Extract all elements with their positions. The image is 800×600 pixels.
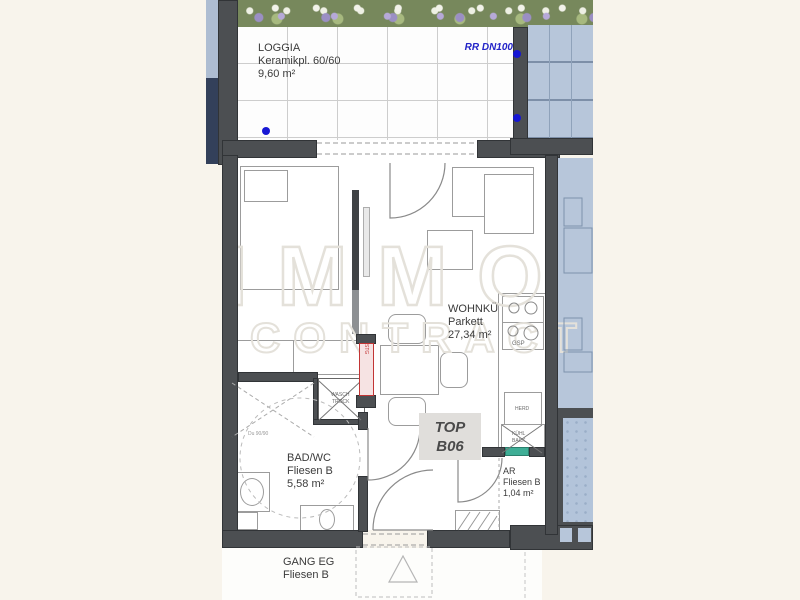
wall-bottom-right: [427, 530, 510, 548]
wall-closet-bottom: [313, 419, 363, 425]
ar-finish: Fliesen B: [503, 477, 541, 488]
neighbor-room-bottom: [563, 418, 593, 522]
neighbor-loggia-floor: [528, 25, 593, 138]
gang-floor: [222, 548, 542, 600]
plumbing-dot-pillar-top: [513, 50, 521, 58]
wohnkueche-label: WOHNKÜ Parkett 27,34 m²: [448, 303, 498, 342]
stove-label: HERD: [515, 406, 529, 412]
neighbor-tile-a: [560, 528, 572, 542]
loggia-finish: Keramikpl. 60/60: [258, 55, 341, 68]
unit-number: B06: [419, 437, 481, 456]
riser-shaft-label: STG: [363, 344, 369, 354]
bad-name: BAD/WC: [287, 452, 333, 465]
washer-label: WASCH: [331, 392, 349, 398]
fridge-label-top: KÜHL: [512, 431, 525, 437]
washbasin: [234, 472, 270, 512]
floorplan-canvas: GSP HERD KÜHL BACK WASCH TROCK IMMO CONT…: [0, 0, 800, 600]
ar-label: AR Fliesen B 1,04 m²: [503, 466, 541, 499]
loggia-label: LOGGIA Keramikpl. 60/60 9,60 m²: [258, 42, 341, 81]
unit-number-box: TOP B06: [419, 413, 481, 460]
wohnkueche-area: 27,34 m²: [448, 329, 498, 342]
balcony-door-opening: [317, 140, 477, 158]
sliding-door-panel: [363, 207, 370, 277]
fridge-label-bottom: BACK: [512, 438, 526, 444]
left-edge-strip-dark: [206, 78, 218, 164]
wall-right: [545, 155, 558, 535]
wall-ar-top-left: [482, 447, 505, 457]
shower-label: Du 90/90: [248, 431, 268, 437]
wall-bath-right-upper: [358, 412, 368, 430]
partition-dark: [352, 190, 359, 290]
neighbor-tile-b: [578, 528, 591, 542]
bad-finish: Fliesen B: [287, 465, 333, 478]
wall-bottom-left: [222, 530, 363, 548]
wohnkueche-finish: Parkett: [448, 316, 498, 329]
wall-loggia-right-pillar: [513, 27, 528, 140]
ar-area: 1,04 m²: [503, 488, 541, 499]
neighbor-room-strip: [558, 158, 593, 408]
dishwasher-label: GSP: [512, 341, 525, 348]
gang-name: GANG EG: [283, 556, 334, 569]
loggia-name: LOGGIA: [258, 42, 341, 55]
chair-top: [388, 314, 426, 344]
wc: [300, 505, 354, 533]
planting-strip-photo: [222, 0, 593, 27]
washbasin-bowl: [240, 478, 264, 506]
sideboard-divider: [293, 341, 294, 374]
wall-shaft-cap-bottom: [356, 395, 376, 408]
dryer-label: TROCK: [332, 399, 350, 405]
wall-bath-top: [238, 372, 318, 382]
drainpipe-label: RR DN100: [458, 42, 513, 53]
loggia-area: 9,60 m²: [258, 68, 341, 81]
bad-area: 5,58 m²: [287, 478, 333, 491]
wall-left: [222, 155, 238, 548]
ar-name: AR: [503, 466, 541, 477]
side-table: [427, 230, 473, 270]
oven-unit: HERD: [504, 392, 542, 426]
bad-label: BAD/WC Fliesen B 5,58 m²: [287, 452, 333, 491]
gang-finish: Fliesen B: [283, 569, 334, 582]
wall-bath-right-lower: [358, 476, 368, 532]
riser-shaft: STG: [359, 343, 374, 396]
wall-neighbor-loggia-bottom: [510, 138, 593, 155]
sideboard: [234, 340, 362, 375]
wall-ar-top-right: [529, 447, 545, 457]
sink-divider: [503, 322, 543, 323]
unit-prefix: TOP: [419, 418, 481, 437]
partition-gray: [352, 290, 359, 334]
wardrobe-side: [484, 174, 534, 234]
left-edge-strip-light: [206, 0, 218, 78]
plumbing-dot-loggia: [262, 127, 270, 135]
wohnkueche-name: WOHNKÜ: [448, 303, 498, 316]
bed-pillow: [244, 170, 288, 202]
entry-opening-dashes: [363, 534, 427, 545]
dining-table: [380, 345, 439, 395]
chair-right: [440, 352, 468, 388]
ar-door-threshold: [505, 447, 529, 456]
gang-label: GANG EG Fliesen B: [283, 556, 334, 582]
plumbing-dot-pillar-bottom: [513, 114, 521, 122]
wc-bowl: [319, 509, 335, 530]
wall-closet-left: [313, 378, 318, 424]
